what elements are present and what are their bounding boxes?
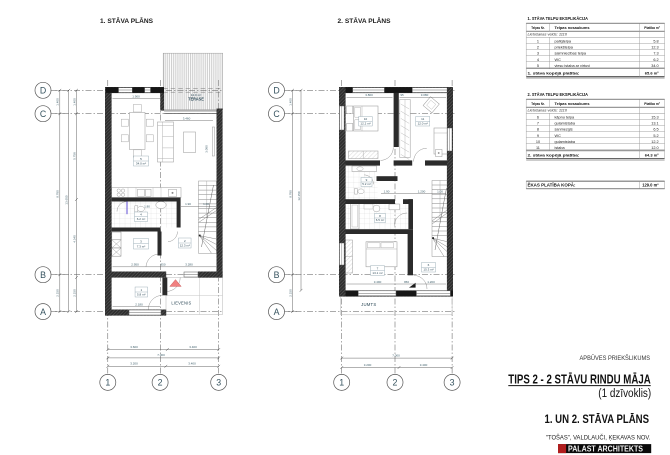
svg-text:APBŪVES PRIEKŠLIKUMS: APBŪVES PRIEKŠLIKUMS [580, 355, 651, 362]
svg-text:3.200: 3.200 [364, 363, 372, 367]
svg-text:6.2: 6.2 [653, 58, 658, 62]
svg-text:13.1: 13.1 [651, 122, 658, 126]
svg-text:Telpas Nr.: Telpas Nr. [531, 26, 545, 30]
svg-text:3.800: 3.800 [365, 93, 373, 97]
svg-text:5: 5 [537, 64, 539, 68]
svg-text:5.8: 5.8 [653, 40, 658, 44]
svg-text:2.150: 2.150 [288, 289, 292, 297]
svg-text:5.2: 5.2 [653, 134, 658, 138]
svg-text:34.0: 34.0 [651, 64, 658, 68]
svg-text:1: 1 [537, 40, 539, 44]
svg-text:3: 3 [450, 378, 455, 388]
svg-text:15.3 m²: 15.3 m² [423, 268, 433, 272]
svg-text:9.780: 9.780 [288, 190, 292, 198]
svg-text:WC: WC [555, 134, 562, 138]
svg-text:1.200: 1.200 [427, 280, 435, 284]
svg-text:12.2: 12.2 [651, 140, 658, 144]
svg-text:129.0 m²: 129.0 m² [642, 183, 659, 188]
svg-text:ĒKAS PLATĪBA KOPĀ:: ĒKAS PLATĪBA KOPĀ: [528, 183, 576, 188]
svg-text:JUMTS: JUMTS [361, 302, 376, 307]
svg-text:15.3: 15.3 [651, 116, 658, 120]
svg-text:11: 11 [536, 146, 540, 150]
svg-text:1.400: 1.400 [56, 98, 60, 106]
svg-text:Telpas nosaukums: Telpas nosaukums [555, 26, 590, 30]
svg-text:WC: WC [555, 58, 562, 62]
svg-text:6.5 m²: 6.5 m² [376, 218, 385, 222]
svg-text:LIEVENIS: LIEVENIS [171, 301, 191, 306]
svg-text:10: 10 [536, 140, 540, 144]
svg-text:"TOŠAS", VALDLAUČI, ĶEKAVAS NO: "TOŠAS", VALDLAUČI, ĶEKAVAS NOV. [546, 435, 651, 442]
svg-text:2.150: 2.150 [72, 289, 76, 297]
svg-text:1. stāva kopējā platība:: 1. stāva kopējā platība: [528, 70, 580, 75]
svg-text:3.280: 3.280 [185, 263, 193, 267]
svg-text:2.180: 2.180 [135, 302, 143, 306]
svg-text:13.1 m²: 13.1 m² [372, 271, 382, 275]
svg-text:3.080: 3.080 [205, 145, 209, 153]
svg-text:1. UN 2. STĀVA PLĀNS: 1. UN 2. STĀVA PLĀNS [545, 412, 650, 426]
svg-text:9.780: 9.780 [56, 190, 60, 198]
svg-text:1. STĀVA TELPU EKSPLIKĀCIJA: 1. STĀVA TELPU EKSPLIKĀCIJA [528, 15, 589, 22]
svg-text:A: A [274, 307, 280, 317]
svg-text:D: D [40, 86, 46, 96]
svg-text:3.490: 3.490 [374, 280, 382, 284]
svg-text:12.0: 12.0 [651, 146, 658, 150]
svg-text:34.0 m²: 34.0 m² [136, 162, 146, 166]
svg-text:64.3 m²: 64.3 m² [645, 152, 659, 157]
svg-text:7.3: 7.3 [653, 52, 658, 56]
svg-text:1.200: 1.200 [418, 190, 426, 194]
svg-text:5.2 m²: 5.2 m² [362, 182, 371, 186]
svg-text:3.460: 3.460 [183, 116, 191, 120]
svg-text:PALAST ARCHITEKTS: PALAST ARCHITEKTS [568, 443, 643, 453]
svg-text:95: 95 [400, 93, 404, 97]
svg-text:Platība m²: Platība m² [644, 102, 660, 106]
svg-text:3.080: 3.080 [421, 93, 429, 97]
svg-text:8: 8 [537, 128, 539, 132]
svg-text:C: C [40, 109, 47, 119]
svg-text:1. STĀVA PLĀNS: 1. STĀVA PLĀNS [100, 17, 153, 25]
svg-text:2: 2 [537, 46, 539, 50]
svg-text:12.2 m²: 12.2 m² [360, 122, 370, 126]
svg-text:Telpas Nr.: Telpas Nr. [531, 102, 545, 106]
svg-text:10: 10 [364, 117, 368, 121]
svg-text:2. STĀVA PLĀNS: 2. STĀVA PLĀNS [338, 17, 391, 25]
svg-text:9: 9 [537, 134, 539, 138]
svg-text:3.400: 3.400 [189, 345, 197, 349]
svg-text:guļamistaba: guļamistaba [555, 140, 576, 144]
svg-text:6.5: 6.5 [653, 128, 658, 132]
svg-text:3.400: 3.400 [188, 362, 196, 366]
svg-text:viesu istaba ar virtuvi: viesu istaba ar virtuvi [555, 64, 591, 68]
svg-text:12.150: 12.150 [297, 191, 301, 201]
svg-text:950: 950 [160, 263, 165, 267]
svg-text:3: 3 [216, 378, 221, 388]
svg-text:istaba: istaba [555, 146, 566, 150]
svg-text:3.200: 3.200 [130, 362, 138, 366]
svg-text:1.90: 1.90 [185, 202, 191, 206]
svg-text:4.340: 4.340 [72, 235, 76, 243]
svg-text:palīgtelpa: palīgtelpa [555, 40, 572, 44]
svg-text:Telpas nosaukums: Telpas nosaukums [555, 102, 590, 106]
svg-text:2. stāva kopējā platība:: 2. stāva kopējā platība: [528, 152, 580, 157]
svg-text:2: 2 [393, 378, 398, 388]
svg-text:5.8 m²: 5.8 m² [137, 293, 146, 297]
svg-text:2. STĀVA TELPU EKSPLIKĀCIJA: 2. STĀVA TELPU EKSPLIKĀCIJA [528, 91, 589, 98]
svg-text:3.600: 3.600 [130, 345, 138, 349]
svg-text:B: B [40, 270, 46, 280]
svg-text:1.00: 1.00 [437, 190, 443, 194]
svg-text:1.80: 1.80 [144, 204, 150, 208]
svg-text:B: B [274, 270, 280, 280]
svg-text:TERASE: TERASE [188, 97, 204, 102]
svg-text:7.000: 7.000 [392, 353, 400, 357]
svg-text:13.650: 13.650 [65, 195, 69, 205]
svg-text:C: C [273, 109, 280, 119]
svg-text:3: 3 [537, 52, 539, 56]
svg-text:12.3 m²: 12.3 m² [180, 244, 190, 248]
svg-text:4: 4 [537, 58, 539, 62]
svg-text:65.6 m²: 65.6 m² [645, 70, 659, 75]
svg-text:5.758: 5.758 [72, 152, 76, 160]
svg-text:1.900: 1.900 [132, 94, 140, 98]
svg-text:7.3 m²: 7.3 m² [137, 245, 146, 249]
svg-text:priekštelpa: priekštelpa [555, 46, 574, 50]
svg-text:sanmezgls: sanmezgls [555, 128, 573, 132]
svg-text:1.90: 1.90 [384, 190, 390, 194]
svg-text:Lietošanas veids: 1110: Lietošanas veids: 1110 [528, 33, 568, 37]
svg-text:1.00: 1.00 [203, 202, 209, 206]
svg-text:3.400: 3.400 [420, 363, 428, 367]
svg-text:TIPS 2 - 2 STĀVU RINDU MĀJA: TIPS 2 - 2 STĀVU RINDU MĀJA [508, 372, 650, 386]
svg-text:guļamistaba: guļamistaba [555, 122, 576, 126]
svg-text:6.2 m²: 6.2 m² [137, 217, 146, 221]
svg-text:12.3: 12.3 [651, 46, 658, 50]
svg-text:1: 1 [105, 378, 110, 388]
svg-text:A: A [40, 307, 46, 317]
svg-text:Platība m²: Platība m² [644, 26, 660, 30]
svg-text:12.0 m²: 12.0 m² [418, 122, 428, 126]
svg-text:2.150: 2.150 [56, 289, 60, 297]
svg-text:7.000: 7.000 [157, 353, 165, 357]
svg-text:6: 6 [537, 116, 539, 120]
svg-text:1.400: 1.400 [288, 98, 292, 106]
svg-text:(1 dzīvoklis): (1 dzīvoklis) [598, 386, 651, 400]
svg-text:Lietošanas veids: 1110: Lietošanas veids: 1110 [528, 109, 568, 113]
svg-text:950: 950 [404, 280, 409, 284]
svg-text:7: 7 [537, 122, 539, 126]
svg-text:saimniecības telpa: saimniecības telpa [555, 52, 587, 56]
svg-text:1: 1 [339, 378, 344, 388]
svg-text:2.950: 2.950 [131, 263, 139, 267]
svg-text:11: 11 [421, 117, 424, 121]
svg-text:kāpņu telpa: kāpņu telpa [555, 116, 576, 120]
svg-text:D: D [273, 86, 279, 96]
svg-text:1.400: 1.400 [72, 98, 76, 106]
svg-text:2: 2 [158, 378, 163, 388]
